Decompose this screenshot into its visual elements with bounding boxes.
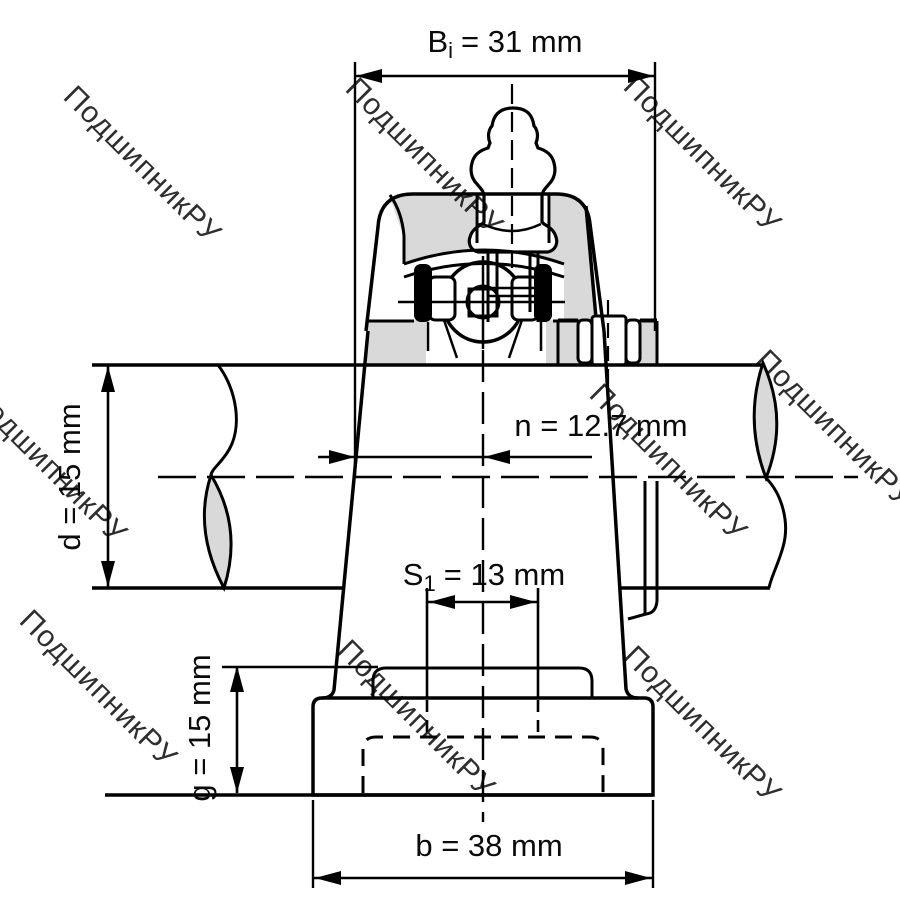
collar-rim [628, 481, 657, 619]
watermark-text: ПодшипникРУ [583, 378, 753, 548]
dimension-g: g = 15 mm [182, 654, 378, 801]
label-g: g = 15 mm [182, 654, 217, 801]
technical-drawing-page: Bi= 31 mm n = 12.7 mm d = 15 mm S1= 13 m… [0, 0, 900, 900]
watermark-text: ПодшипникРУ [57, 80, 227, 250]
dimension-s1: S1= 13 mm [403, 557, 565, 609]
watermark-text: ПодшипникРУ [13, 604, 183, 774]
bearing-cross-section-diagram: Bi= 31 mm n = 12.7 mm d = 15 mm S1= 13 m… [0, 0, 900, 900]
watermark-text: ПодшипникРУ [617, 640, 787, 810]
watermark-text: ПодшипникРУ [617, 70, 787, 240]
break-curve-right [766, 478, 786, 588]
break-lens-left [204, 475, 231, 588]
break-curve-left [211, 365, 236, 475]
label-bi: Bi= 31 mm [427, 24, 582, 63]
race-left [429, 277, 455, 320]
label-s1: S1= 13 mm [403, 557, 565, 596]
label-b: b = 38 mm [415, 828, 562, 863]
watermark-text: ПодшипникРУ [331, 634, 501, 804]
